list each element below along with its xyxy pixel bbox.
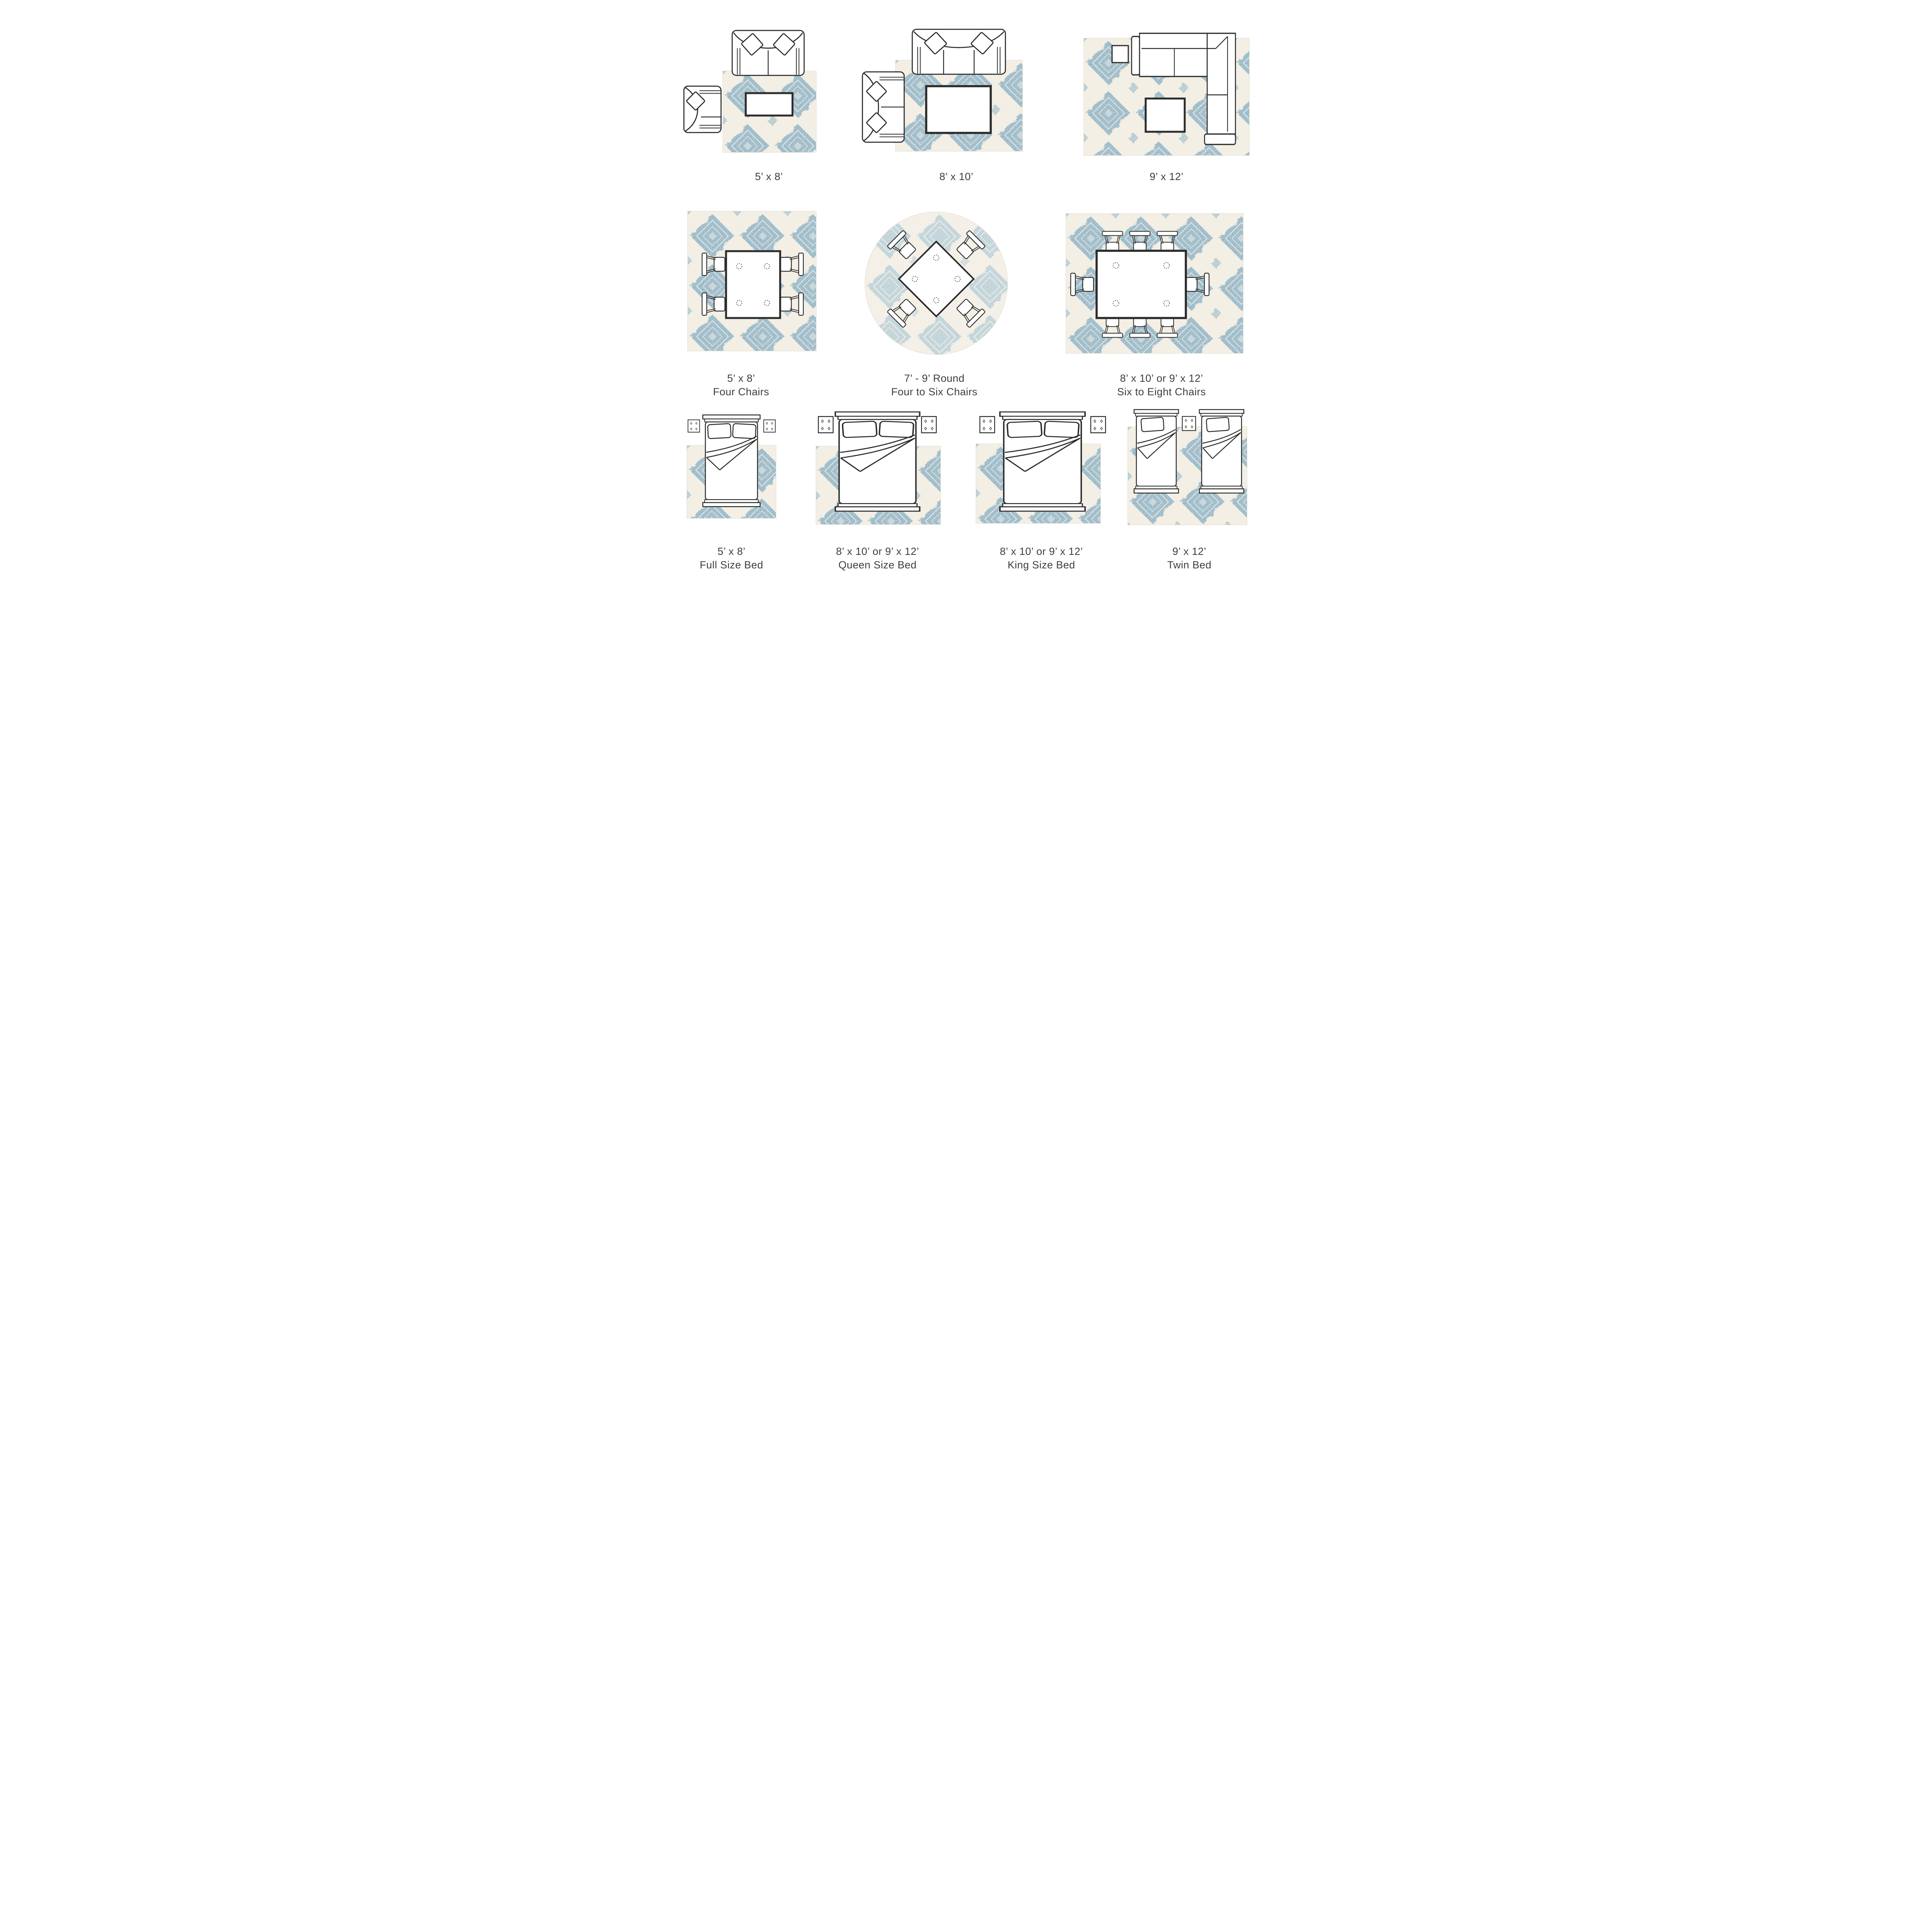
dining-chair-icon [1185, 271, 1210, 298]
sub-label: Twin Bed [1131, 558, 1247, 572]
label-bed-queen: 8’ x 10’ or 9’ x 12’ Queen Size Bed [808, 545, 947, 572]
dining-chair-icon [701, 292, 726, 316]
coffee-table-icon [745, 92, 794, 117]
sub-label: Full Size Bed [673, 558, 789, 572]
side-table-icon [1111, 45, 1129, 63]
dining-chair-icon [1070, 271, 1094, 298]
nightstand-icon [1182, 416, 1196, 431]
sub-label: Six to Eight Chairs [1092, 385, 1231, 399]
twin-bed-icon [1199, 409, 1245, 494]
size-label: 9’ x 12’ [1131, 545, 1247, 558]
rug-size-guide: 5’ x 8’ 8’ x 10’ 9’ x 12’ 5’ x 8’ Four C… [665, 0, 1267, 601]
dining-chair-icon [780, 252, 804, 277]
nightstand-icon [763, 419, 776, 433]
dining-chair-icon [780, 292, 804, 316]
armchair-icon [683, 85, 722, 134]
label-dining-5x8: 5’ x 8’ Four Chairs [672, 372, 811, 399]
size-label: 5’ x 8’ [699, 170, 838, 184]
sofa-icon [911, 28, 1007, 75]
nightstand-icon [687, 419, 700, 433]
nightstand-icon [1090, 416, 1106, 434]
nightstand-icon [979, 416, 995, 434]
twin-bed-icon [1133, 409, 1179, 494]
label-bed-king: 8’ x 10’ or 9’ x 12’ King Size Bed [972, 545, 1111, 572]
coffee-table-icon [1145, 97, 1186, 133]
sub-label: King Size Bed [972, 558, 1111, 572]
size-label: 8’ x 10’ or 9’ x 12’ [1092, 372, 1231, 385]
nightstand-icon [818, 416, 834, 434]
queen-bed-icon [834, 411, 921, 512]
label-living-9x12: 9’ x 12’ [1097, 170, 1236, 184]
size-label: 5’ x 8’ [672, 372, 811, 385]
size-label: 8’ x 10’ or 9’ x 12’ [808, 545, 947, 558]
square-table-icon [883, 226, 990, 332]
king-bed-icon [999, 411, 1086, 512]
label-bed-twin: 9’ x 12’ Twin Bed [1131, 545, 1247, 572]
coffee-table-icon [925, 85, 992, 134]
size-label: 7’ - 9’ Round [865, 372, 1004, 385]
size-label: 8’ x 10’ [887, 170, 1026, 184]
label-living-5x8: 5’ x 8’ [699, 170, 838, 184]
dining-table-icon [725, 250, 781, 319]
size-label: 8’ x 10’ or 9’ x 12’ [972, 545, 1111, 558]
full-bed-icon [702, 414, 761, 508]
label-bed-full: 5’ x 8’ Full Size Bed [673, 545, 789, 572]
sofa-icon [731, 29, 805, 77]
size-label: 5’ x 8’ [673, 545, 789, 558]
label-dining-9x12: 8’ x 10’ or 9’ x 12’ Six to Eight Chairs [1092, 372, 1231, 399]
sub-label: Queen Size Bed [808, 558, 947, 572]
sub-label: Four Chairs [672, 385, 811, 399]
label-dining-round: 7’ - 9’ Round Four to Six Chairs [865, 372, 1004, 399]
dining-chair-icon [701, 252, 726, 277]
label-living-8x10: 8’ x 10’ [887, 170, 1026, 184]
loveseat-icon [861, 71, 905, 143]
size-label: 9’ x 12’ [1097, 170, 1236, 184]
sub-label: Four to Six Chairs [865, 385, 1004, 399]
nightstand-icon [921, 416, 937, 434]
dining-table-icon [1095, 250, 1187, 319]
